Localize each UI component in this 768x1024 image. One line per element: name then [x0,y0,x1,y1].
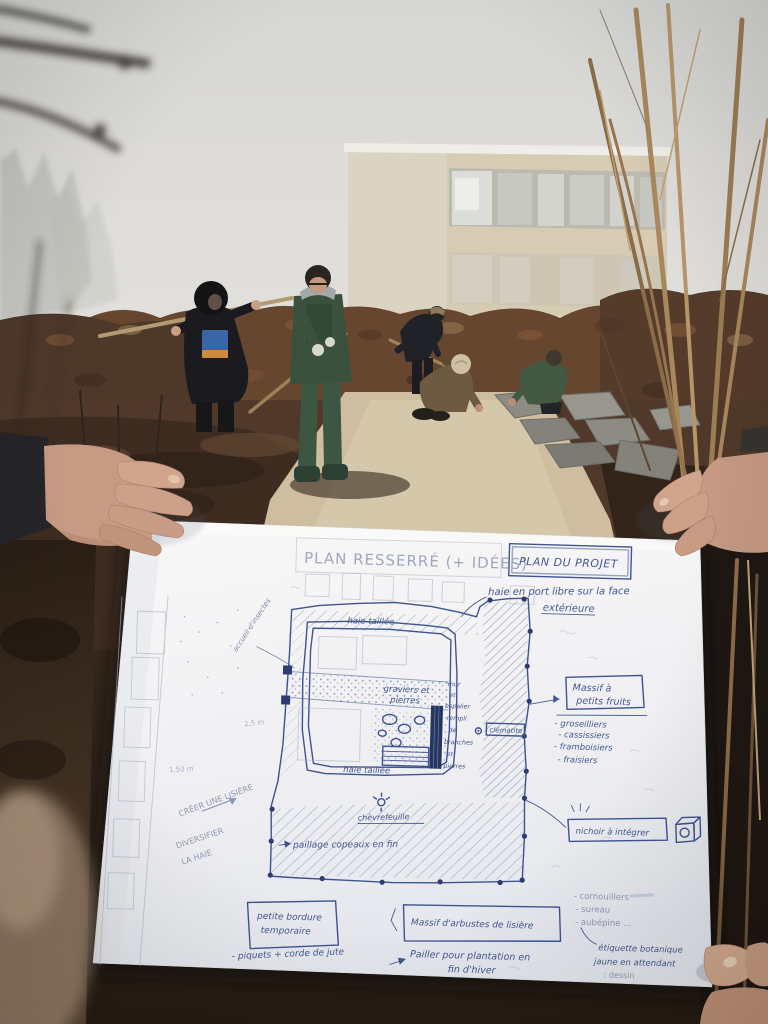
right-hand [636,426,768,556]
pailler-note-2: fin d'hiver [448,964,497,976]
svg-text:pierres: pierres [442,763,466,771]
etiquette-note-3: : dessin [603,970,634,980]
chevrefeuille-label: chèvrefeuille [358,811,410,822]
svg-text:espalier: espalier [445,703,471,711]
svg-text:de: de [448,727,456,734]
paillage-zone [270,795,524,882]
massif-fruits-title: Massif à [572,682,611,694]
graviers-label-2: pierres [389,695,420,706]
note-haie-libre: haie en port libre sur la face [488,586,630,598]
entrance-post [283,665,292,674]
bordure-label-2: temporaire [261,926,312,937]
svg-text:et: et [449,691,456,699]
measure-label-2: 1,50 m [169,765,194,774]
bordure-label: petite bordure [256,912,322,924]
espece-item: - aubépine ... [575,917,631,930]
svg-text:mur: mur [448,681,461,688]
fruit-item: - framboisiers [554,742,613,754]
fruit-item: - groseilliers [554,719,607,730]
clematite-label: clématite [489,726,522,735]
note-haie-libre-2: extérieure [543,602,595,615]
svg-text:rempli: rempli [447,715,468,723]
espece-item: - sureau [575,905,610,916]
foreground-overlay: PLAN RESSERRÉ (+ IDÉES) PLAN DU PROJET h… [0,0,768,1024]
nichoir-label: nichoir à intégrer [575,826,649,839]
fruit-item: - cassissiers [558,730,610,741]
right-sleeve [740,426,768,452]
svg-text:et: et [447,750,454,758]
entrance-post [281,695,290,704]
haie-taillee-bottom: haie taillée [343,764,390,776]
dark-wall [429,706,443,769]
massif-fruits-zone [477,599,532,798]
photo-garden-plan: PLAN RESSERRÉ (+ IDÉES) PLAN DU PROJET h… [0,0,768,1024]
left-hand [0,432,205,556]
paillage-label: paillage copeaux en fin [292,840,398,851]
fruit-item: - fraisiers [557,755,598,766]
haie-taillee-top: haie taillée [347,615,394,627]
espece-item: - cornouillers [574,892,630,904]
massif-fruits-title-2: petits fruits [575,696,631,709]
project-box-label: PLAN DU PROJET [519,555,619,571]
svg-text:branches: branches [444,739,474,747]
